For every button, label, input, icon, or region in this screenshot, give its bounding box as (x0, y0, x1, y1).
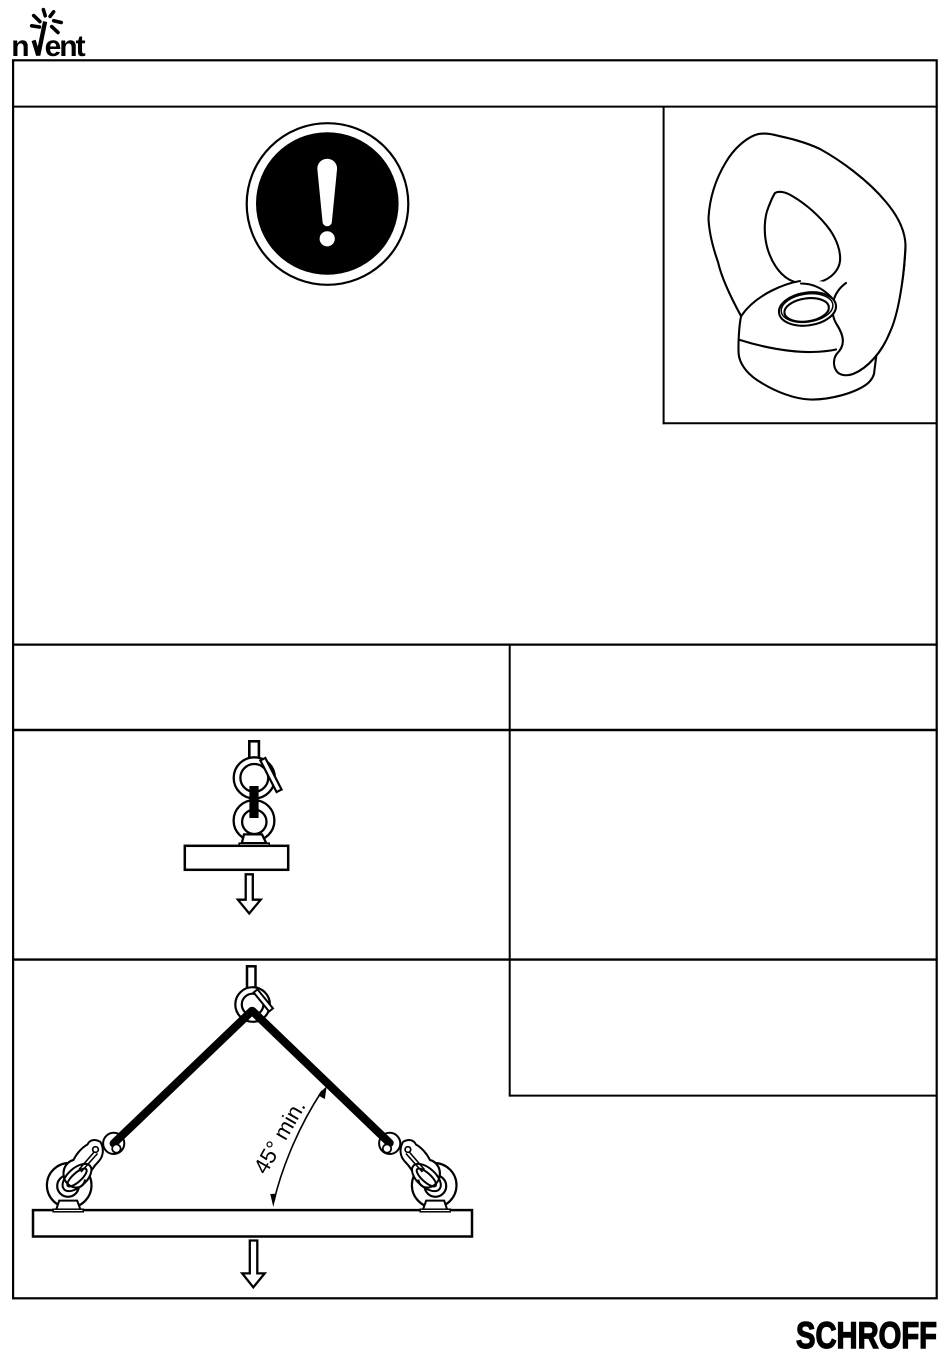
svg-text:n: n (11, 30, 29, 63)
svg-text:ent: ent (45, 30, 86, 63)
svg-text:SCHROFF: SCHROFF (796, 1314, 937, 1356)
